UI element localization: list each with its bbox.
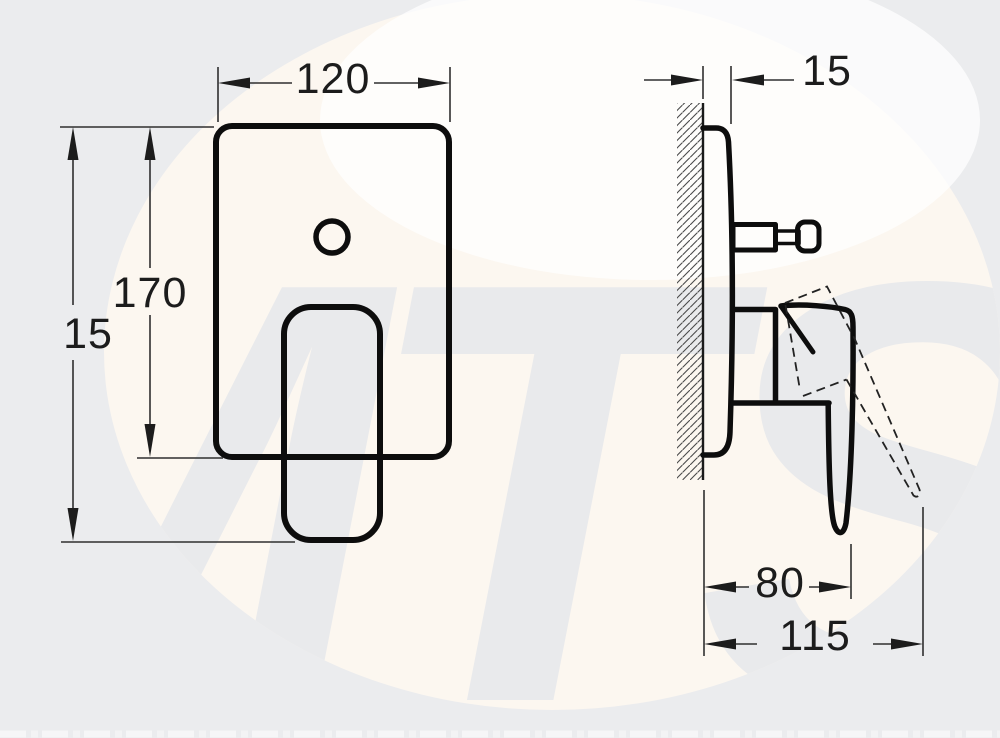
mixer-dimension-drawing: MTS 120 170 15 xyxy=(0,0,1000,738)
bottom-watermark-strip xyxy=(0,731,1000,738)
dim-label-width: 120 xyxy=(296,55,371,103)
technical-drawing-page: MTS 120 170 15 xyxy=(0,0,1000,738)
dim-label-height: 170 xyxy=(113,269,188,317)
dim-label-overall-depth: 115 xyxy=(779,612,851,660)
dim-label-handle-projection: 80 xyxy=(755,559,805,607)
dim-label-overall-height: 15 xyxy=(63,310,113,358)
wall-hatching xyxy=(677,103,703,480)
dim-label-wall-offset: 15 xyxy=(802,47,852,95)
